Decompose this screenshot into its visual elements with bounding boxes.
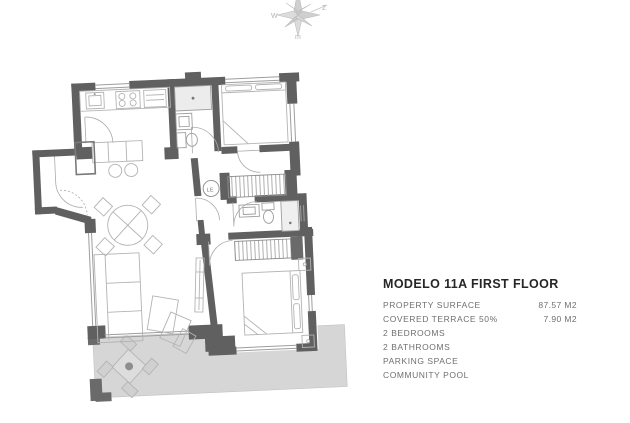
spec-label: 2 BEDROOMS	[383, 328, 445, 338]
info-panel: MODELO 11A FIRST FLOOR PROPERTY SURFACE …	[383, 277, 577, 384]
spec-value: 7.90 M2	[543, 314, 577, 324]
spec-label: COMMUNITY POOL	[383, 370, 469, 380]
spec-label: PROPERTY SURFACE	[383, 300, 481, 310]
floorplan-page: W Z m	[0, 0, 630, 423]
spec-row-bedrooms: 2 BEDROOMS	[383, 328, 577, 342]
spec-row-bathrooms: 2 BATHROOMS	[383, 342, 577, 356]
compass-rose-icon: W Z m	[271, 0, 327, 41]
spec-label: PARKING SPACE	[383, 356, 458, 366]
svg-text:LE: LE	[207, 187, 214, 193]
washing-machine-icon: LE	[203, 180, 220, 197]
spec-row-pool: COMMUNITY POOL	[383, 370, 577, 384]
spec-row-parking: PARKING SPACE	[383, 356, 577, 370]
spec-label: COVERED TERRACE 50%	[383, 314, 498, 324]
wardrobe-icon	[235, 239, 294, 261]
corridor-closet	[228, 174, 287, 198]
entry-floor	[34, 150, 87, 216]
shower-icon	[281, 201, 299, 232]
spec-row-covered-terrace: COVERED TERRACE 50% 7.90 M2	[383, 314, 577, 328]
spec-row-property-surface: PROPERTY SURFACE 87.57 M2	[383, 300, 577, 314]
compass-letter-upper-right: Z	[322, 5, 327, 12]
compass-letter-left: W	[271, 13, 278, 20]
compass-letter-bottom: m	[295, 34, 301, 41]
spec-label: 2 BATHROOMS	[383, 342, 450, 352]
plan-title: MODELO 11A FIRST FLOOR	[383, 277, 577, 291]
spec-value: 87.57 M2	[538, 300, 577, 310]
